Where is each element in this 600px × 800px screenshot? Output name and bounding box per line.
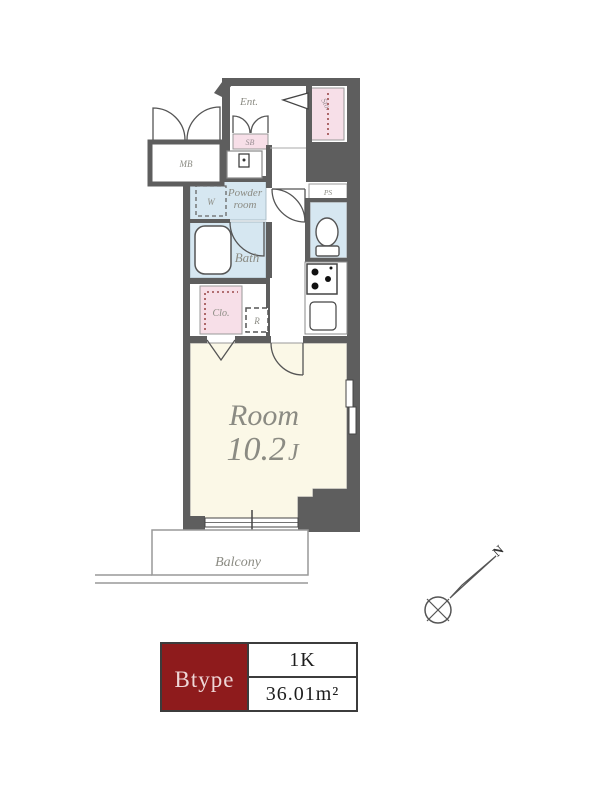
legend-table: Btype 1K 36.01m² [160,642,358,712]
layout-cell: 1K [249,644,356,678]
entrance-label: Ent. [239,96,258,108]
shoe-box-door-left [233,116,250,133]
vanity-drain-icon [243,159,246,162]
meter-box-door-right [187,107,220,140]
kitchen-sink [310,302,336,330]
shoe-box-label: SB [246,138,255,147]
stove-burner-icon [330,267,333,270]
refrigerator-label: R [253,316,260,326]
bathtub [195,226,231,274]
powder-room-label: Powder [227,187,263,199]
stove-burner-icon [312,269,319,276]
pipe-space-label: PS [323,188,333,197]
room-size-label: 10.2 [227,431,287,468]
legend-right-column: 1K 36.01m² [247,644,356,710]
floor-plan-page: N Ent. SB MB Sto. PS Powder room W Bath … [0,0,600,800]
stove-burner-icon [312,283,319,290]
bath-label: Bath [235,250,260,265]
balcony [95,530,308,583]
closet-label: Clo. [213,308,230,319]
compass-north-label: N [489,542,506,560]
compass: N [425,542,507,623]
toilet-tank-icon [316,246,339,256]
meter-box-door-left [153,108,185,140]
side-window-upper [346,380,353,407]
stove [307,264,337,294]
unit-type-cell: Btype [162,644,247,710]
area-cell: 36.01m² [249,678,356,710]
toilet-bowl-icon [316,218,338,246]
room-label: Room [228,399,299,432]
front-door [283,93,308,109]
room-size-unit: J [288,440,300,466]
stove-burner-icon [325,276,331,282]
meter-box-label: MB [179,159,193,169]
powder-room-label: room [234,199,257,211]
balcony-label: Balcony [215,555,262,570]
shoe-box-door-right [251,116,268,133]
compass-needle-icon [450,556,496,598]
side-window-lower [349,407,356,434]
